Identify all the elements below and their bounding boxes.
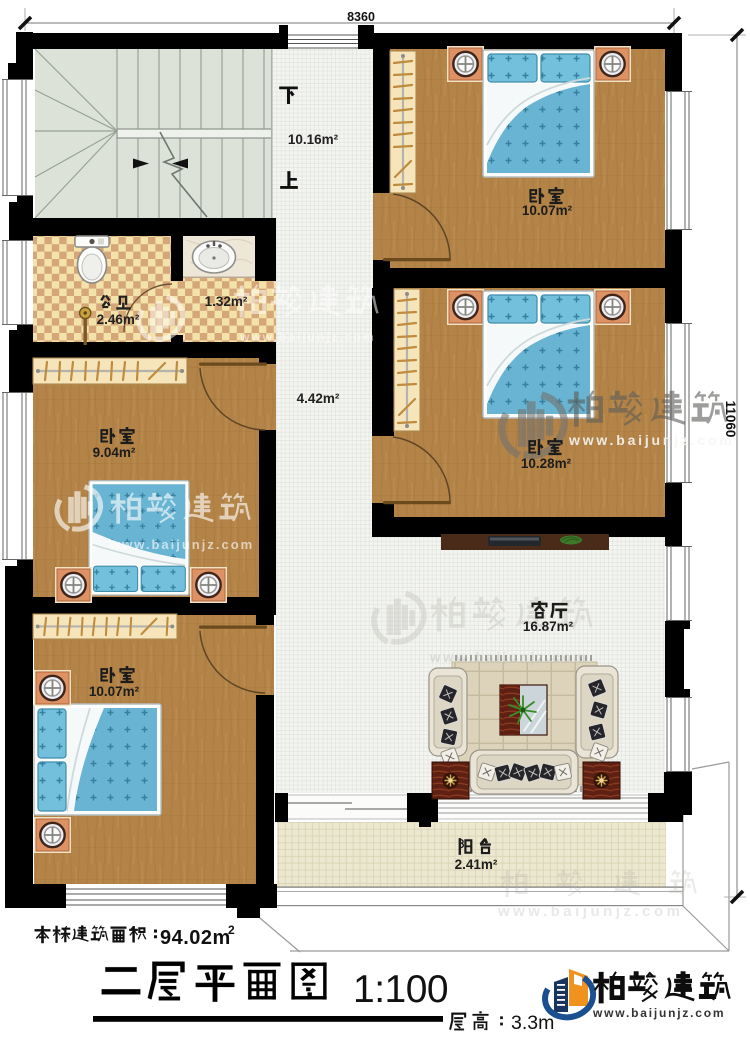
svg-text:www.baijunjz.com: www.baijunjz.com <box>568 432 735 448</box>
svg-text:2.46m²: 2.46m² <box>97 312 140 327</box>
svg-text:10.16m²: 10.16m² <box>288 132 339 147</box>
svg-text:9.04m²: 9.04m² <box>93 445 136 460</box>
svg-text:www.baijunjz.com: www.baijunjz.com <box>429 650 588 665</box>
svg-text:www.baijunjz.com: www.baijunjz.com <box>109 537 254 552</box>
svg-text:10.07m²: 10.07m² <box>89 684 140 699</box>
svg-text:94.02m: 94.02m <box>160 927 231 949</box>
svg-text:3.3m: 3.3m <box>511 1012 554 1034</box>
svg-text:8360: 8360 <box>347 10 375 24</box>
svg-text:16.87m²: 16.87m² <box>523 619 574 634</box>
svg-text:www.baijunjz.com: www.baijunjz.com <box>497 903 683 920</box>
svg-text:1.32m²: 1.32m² <box>205 294 248 309</box>
svg-text:11060: 11060 <box>723 401 738 438</box>
svg-text:www.baijunjz.com: www.baijunjz.com <box>592 1006 725 1020</box>
svg-text:www.baijunjz.com: www.baijunjz.com <box>239 330 376 344</box>
svg-text:1:100: 1:100 <box>353 968 448 1011</box>
svg-text:10.07m²: 10.07m² <box>522 203 573 218</box>
svg-text:10.28m²: 10.28m² <box>521 456 572 471</box>
svg-text:2: 2 <box>228 923 235 937</box>
svg-text:4.42m²: 4.42m² <box>297 391 340 406</box>
svg-text:2.41m²: 2.41m² <box>455 857 498 872</box>
